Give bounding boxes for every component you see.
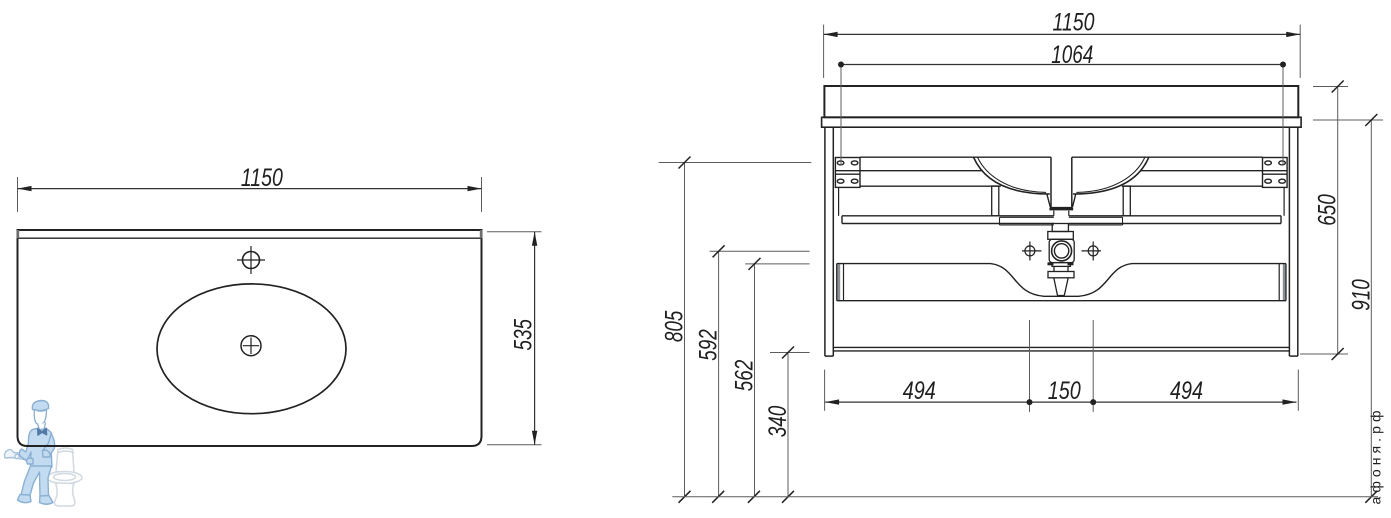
svg-text:650: 650 [1314,194,1342,226]
svg-text:340: 340 [764,406,792,438]
svg-text:1150: 1150 [241,164,283,192]
svg-text:805: 805 [661,311,689,343]
svg-text:562: 562 [731,360,759,392]
svg-text:910: 910 [1347,279,1375,311]
svg-text:535: 535 [509,319,537,351]
svg-text:494: 494 [1170,377,1203,405]
svg-text:592: 592 [695,329,723,361]
svg-text:494: 494 [903,377,936,405]
svg-text:150: 150 [1048,377,1081,405]
svg-text:1064: 1064 [1051,41,1093,69]
svg-text:1150: 1150 [1053,8,1095,36]
